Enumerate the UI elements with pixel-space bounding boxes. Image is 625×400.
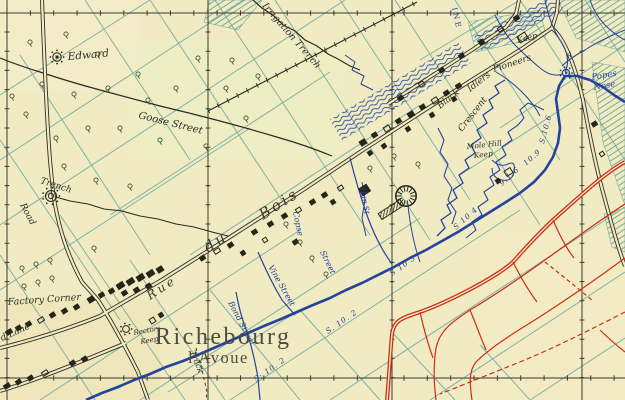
label-a-marker: A — [566, 51, 572, 59]
map-svg: Edward Irrigation Trench Goose Street Tr… — [0, 0, 625, 400]
trench-map[interactable]: Edward Irrigation Trench Goose Street Tr… — [0, 0, 625, 400]
label-richebourg: Richebourg — [155, 324, 292, 350]
